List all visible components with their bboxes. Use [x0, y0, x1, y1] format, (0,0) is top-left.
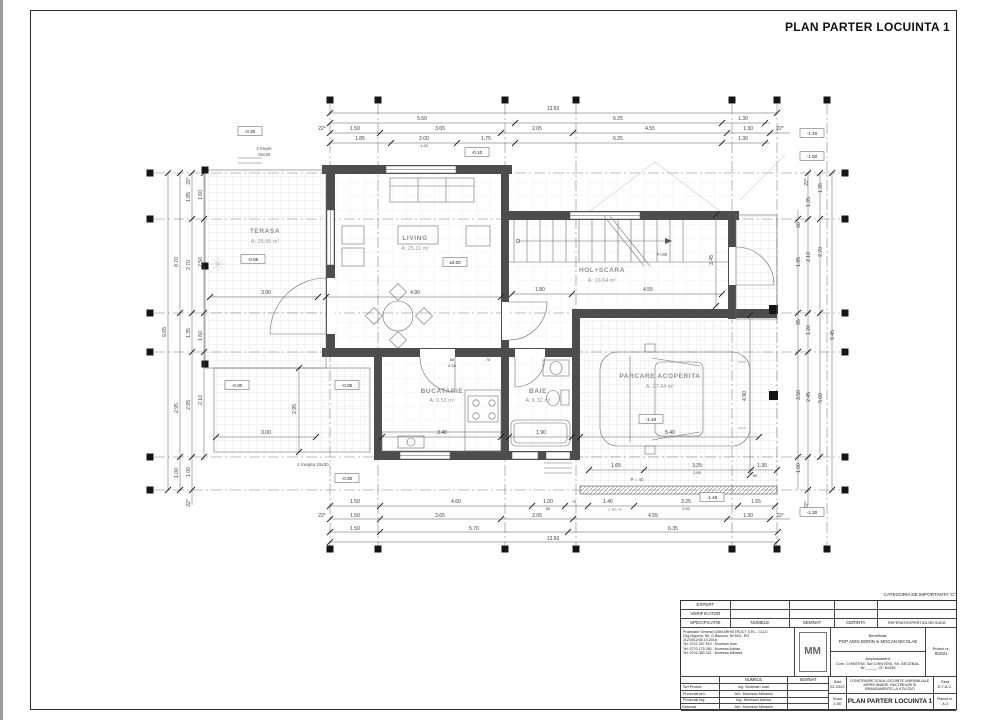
dim-label: 3.00 [261, 430, 271, 436]
dim-label: 3.50 [796, 390, 802, 400]
dim-label: 5.60 [818, 393, 824, 403]
dim-label: 1.00 [543, 499, 553, 505]
dim-label: 2.50 [198, 257, 204, 267]
titleblock-verificator-label: VERIFICATOR [681, 610, 731, 619]
level-badge: -0.05 [342, 383, 353, 388]
room-area: A: 16.64 m² [588, 278, 617, 284]
role-label: Proiectat Arh. [681, 691, 719, 698]
beneficiar-name: POP ADIN DORIN si MOCAN NICOLAE [839, 639, 917, 644]
dim-label: 3.25 [681, 499, 691, 505]
dim-label: 50 [753, 473, 758, 478]
dim-label: 1.50 [350, 513, 360, 519]
dim-label: 1.80 [535, 287, 545, 293]
dim-label: 1.00 [796, 463, 802, 473]
dim-label: 5.60 [417, 116, 427, 122]
dim-label: 1.30 [757, 463, 767, 469]
two-steps-label: 2 trepte [256, 146, 272, 151]
role-label: Sef Proiect [681, 684, 719, 691]
signature-cell [788, 704, 828, 710]
dim-label: 1.30 [743, 126, 753, 132]
dim-labels-left: 9.65 8.70 2.95 1.00 1.85 2.70 1.35 2.95 … [162, 177, 204, 507]
dim-label: 6.35 [668, 526, 678, 532]
level-badge: -0.30 [232, 383, 243, 388]
dim-label: 1.30 [738, 136, 748, 142]
dim-label: 70 [486, 357, 491, 362]
dim-label: 1.40 [603, 499, 613, 505]
room-name: PARCARE ACOPERITA [619, 373, 700, 380]
dim-label: 8.70 [174, 257, 180, 267]
dim-label: 1.65 [751, 499, 761, 505]
two-steps-size-label: 15x30 [258, 152, 271, 157]
room-name: HOL+SCARA [579, 267, 625, 274]
dim-label: 1.20 [806, 325, 812, 335]
role-name: Arh. Muresan Mihaela [720, 704, 788, 710]
terrace-steps [238, 158, 262, 163]
drawing-sheet: PLAN PARTER LOCUINTA 1 [0, 0, 988, 720]
room-area: A: 25.95 m² [251, 239, 280, 245]
dim-label: 1.00 [174, 468, 180, 478]
titleblock-header-specificatie: SPECIFICATIE [681, 619, 731, 628]
titleblock-header-cerinta: CERINTA [835, 619, 878, 628]
slope-label: 4.55 % [608, 507, 622, 512]
dim-label: 22° [318, 513, 326, 519]
dim-label: 1.50 [350, 126, 360, 132]
plansa-value: A.3 [942, 702, 948, 707]
dim-label: 2.70 [818, 247, 824, 257]
dim-label: 22° [776, 126, 784, 132]
room-area: A: 27.44 m² [646, 384, 675, 390]
room-area: A: 9.53 m² [429, 398, 455, 404]
dim-label: 1.00 [186, 467, 192, 477]
dim-label: 13.50 [547, 536, 560, 542]
dim-label: 22° [318, 126, 326, 132]
dim-label: 1.20 [420, 143, 429, 148]
dim-label: 1.90 [536, 430, 546, 436]
level-badge: -1.45 [707, 495, 718, 500]
dim-label: 1.60 [198, 331, 204, 341]
scara-value: 1:50 [833, 702, 841, 707]
dim-label: 4.90 [742, 391, 748, 401]
dim-label: 3.25 [692, 463, 702, 469]
titleblock-empty-cell [731, 601, 791, 610]
dim-label: 4.60 [451, 499, 461, 505]
dim-label: 2.45 [806, 392, 812, 402]
room-area: A: 6.32 m² [525, 398, 551, 404]
dim-label: 2.10 [198, 395, 204, 405]
dim-label: 2.00 [693, 470, 702, 475]
dim-label: 4.90 [410, 290, 420, 296]
dim-label: 1.75 [481, 136, 491, 142]
dim-label: 3.90 [261, 290, 271, 296]
titleblock-expert-label: EXPERT [681, 601, 731, 610]
dim-labels-right: 9.45 1.35 2.70 5.60 1.35 2.10 1.20 2.45 … [796, 178, 836, 509]
dim-label: 2.00 [419, 136, 429, 142]
signature-cell [788, 684, 828, 691]
dim-label: 4.55 [648, 513, 658, 519]
dim-label: 2.95 [174, 403, 180, 413]
dim-label: 3.40 [437, 430, 447, 436]
dim-label: 22° [186, 499, 192, 507]
role-label: Desenat [681, 704, 720, 710]
dim-label: 1.35 [806, 197, 812, 207]
dim-label: 2.70 [186, 260, 192, 270]
dim-label: 1.95 [796, 257, 802, 267]
data-value: 02.2022 [830, 685, 844, 690]
dim-label: 2.05 [532, 126, 542, 132]
dim-label: 4.55 [643, 287, 653, 293]
importance-category-note: CATEGORIA DE IMPORTANTA "C" [680, 592, 956, 597]
dim-label: 13.50 [547, 106, 560, 112]
dim-label: 4.55 [645, 126, 655, 132]
room-name: BUCATARIE [421, 388, 464, 395]
dim-label: 1.50 [350, 526, 360, 532]
dim-label: 9.65 [162, 327, 168, 337]
dim-label: 70 [572, 499, 577, 504]
dim-label: 1.35 [186, 328, 192, 338]
dim-label: 6.25 [613, 116, 623, 122]
level-badge: -1.30 [807, 510, 818, 515]
level-badge: -1.40 [646, 417, 657, 422]
level-badge: -0.10 [472, 150, 483, 155]
titleblock-empty-cell [878, 610, 956, 619]
level-badge: -0.30 [342, 476, 353, 481]
dim-labels-bottom: 1.50 4.60 1.00 80 70 1.40 3.25 2.00 1.65… [318, 499, 784, 542]
dim-label: 1.35 [818, 183, 824, 193]
room-name: LIVING [402, 235, 427, 242]
faza-value: D.T.A.C. [938, 685, 953, 690]
titleblock-empty-cell [790, 601, 835, 610]
dim-label: 3.65 [435, 126, 445, 132]
titleblock-empty-cell [835, 610, 878, 619]
dim-label: 22° [776, 513, 784, 519]
dim-label: 5.70 [469, 526, 479, 532]
dim-label: 80 [450, 357, 455, 362]
titleblock-empty-cell [835, 601, 878, 610]
numele-header: NUMELE [720, 677, 788, 684]
titleblock-empty-cell [878, 601, 956, 610]
level-badge: -1.40 [807, 131, 818, 136]
dim-label: 22° [186, 177, 192, 185]
dim-label: 3.65 [435, 513, 445, 519]
title-block: EXPERT VERIFICATOR SPECIFICATIE NUMELE S… [680, 600, 957, 710]
semnat-header: SEMNAT [788, 677, 828, 684]
dim-label: 1.65 [611, 463, 621, 469]
dim-label: 1.30 [743, 513, 753, 519]
room-name: TERASA [250, 228, 280, 235]
dim-label: 2.45 [709, 255, 715, 265]
company-line: Tel: 0724 380 321 - Muresan Mihaela [683, 651, 767, 655]
dim-label: 1.50 [350, 499, 360, 505]
titleblock-header-semnat: SEMNAT [790, 619, 835, 628]
room-area: A: 25.11 m² [401, 246, 429, 252]
company-logo-stamp: MM [799, 632, 827, 672]
exterior-steps [544, 463, 572, 473]
amplasament-line2: Nr._____, CF 61933 [861, 666, 896, 670]
room-name: BAIE [529, 388, 547, 395]
role-name: Ing. Muresan Ioan [720, 684, 788, 691]
dim-label: 2.05 [532, 513, 542, 519]
plansa-title: PLAN PARTER LOCUINTA 1 [848, 698, 932, 705]
dim-label: 2.00 [682, 506, 691, 511]
dim-label: 1.60 [198, 190, 204, 200]
role-header-blank [681, 677, 719, 684]
dim-label: 6.25 [613, 136, 623, 142]
signature-cell [788, 691, 828, 698]
dim-label: 1.85 [355, 136, 365, 142]
parking-parapet-label: P = 40 [630, 477, 644, 482]
dim-label: 2.95 [292, 404, 298, 414]
dim-label: 1.30 [738, 116, 748, 122]
dim-label: 2.10 [806, 252, 812, 262]
dim-label: 5.40 [665, 430, 675, 436]
one-step-label: 1 treapta 15x30 [297, 462, 329, 467]
dim-label: 9.45 [830, 330, 836, 340]
company-info: Proiectant General:CMM ARHISTRUCT S.R.L.… [683, 630, 767, 655]
obiect-line: BRANSAMENTE LA UTILITATI [865, 687, 915, 691]
level-badge: ±0.00 [449, 260, 461, 265]
level-badge: -0.05 [248, 257, 259, 262]
plant-icon [211, 257, 225, 271]
dim-label: 80 [546, 506, 551, 511]
dim-label: 60 [796, 222, 802, 228]
titleblock-empty-cell [790, 610, 835, 619]
level-badge: -0.30 [245, 129, 256, 134]
stair-parapet-label: P=90 [657, 252, 668, 257]
level-badge: -1.50 [807, 154, 818, 159]
titleblock-header-referat: REFERAT/EXPERTIZA NR./DATA [878, 619, 956, 628]
titleblock-header-numele: NUMELE [731, 619, 791, 628]
dim-label: 85 [796, 319, 802, 325]
dim-label: 1.85 [186, 192, 192, 202]
titleblock-empty-cell [731, 610, 791, 619]
proiect-number: 9/2021 [935, 652, 948, 657]
dim-labels-top: 13.50 5.60 6.25 1.30 22° 1.50 3.65 2.05 … [318, 106, 784, 148]
dim-label: 22° [804, 178, 810, 186]
dim-label: 2.18 [448, 363, 457, 368]
dim-label: 2.95 [186, 400, 192, 410]
